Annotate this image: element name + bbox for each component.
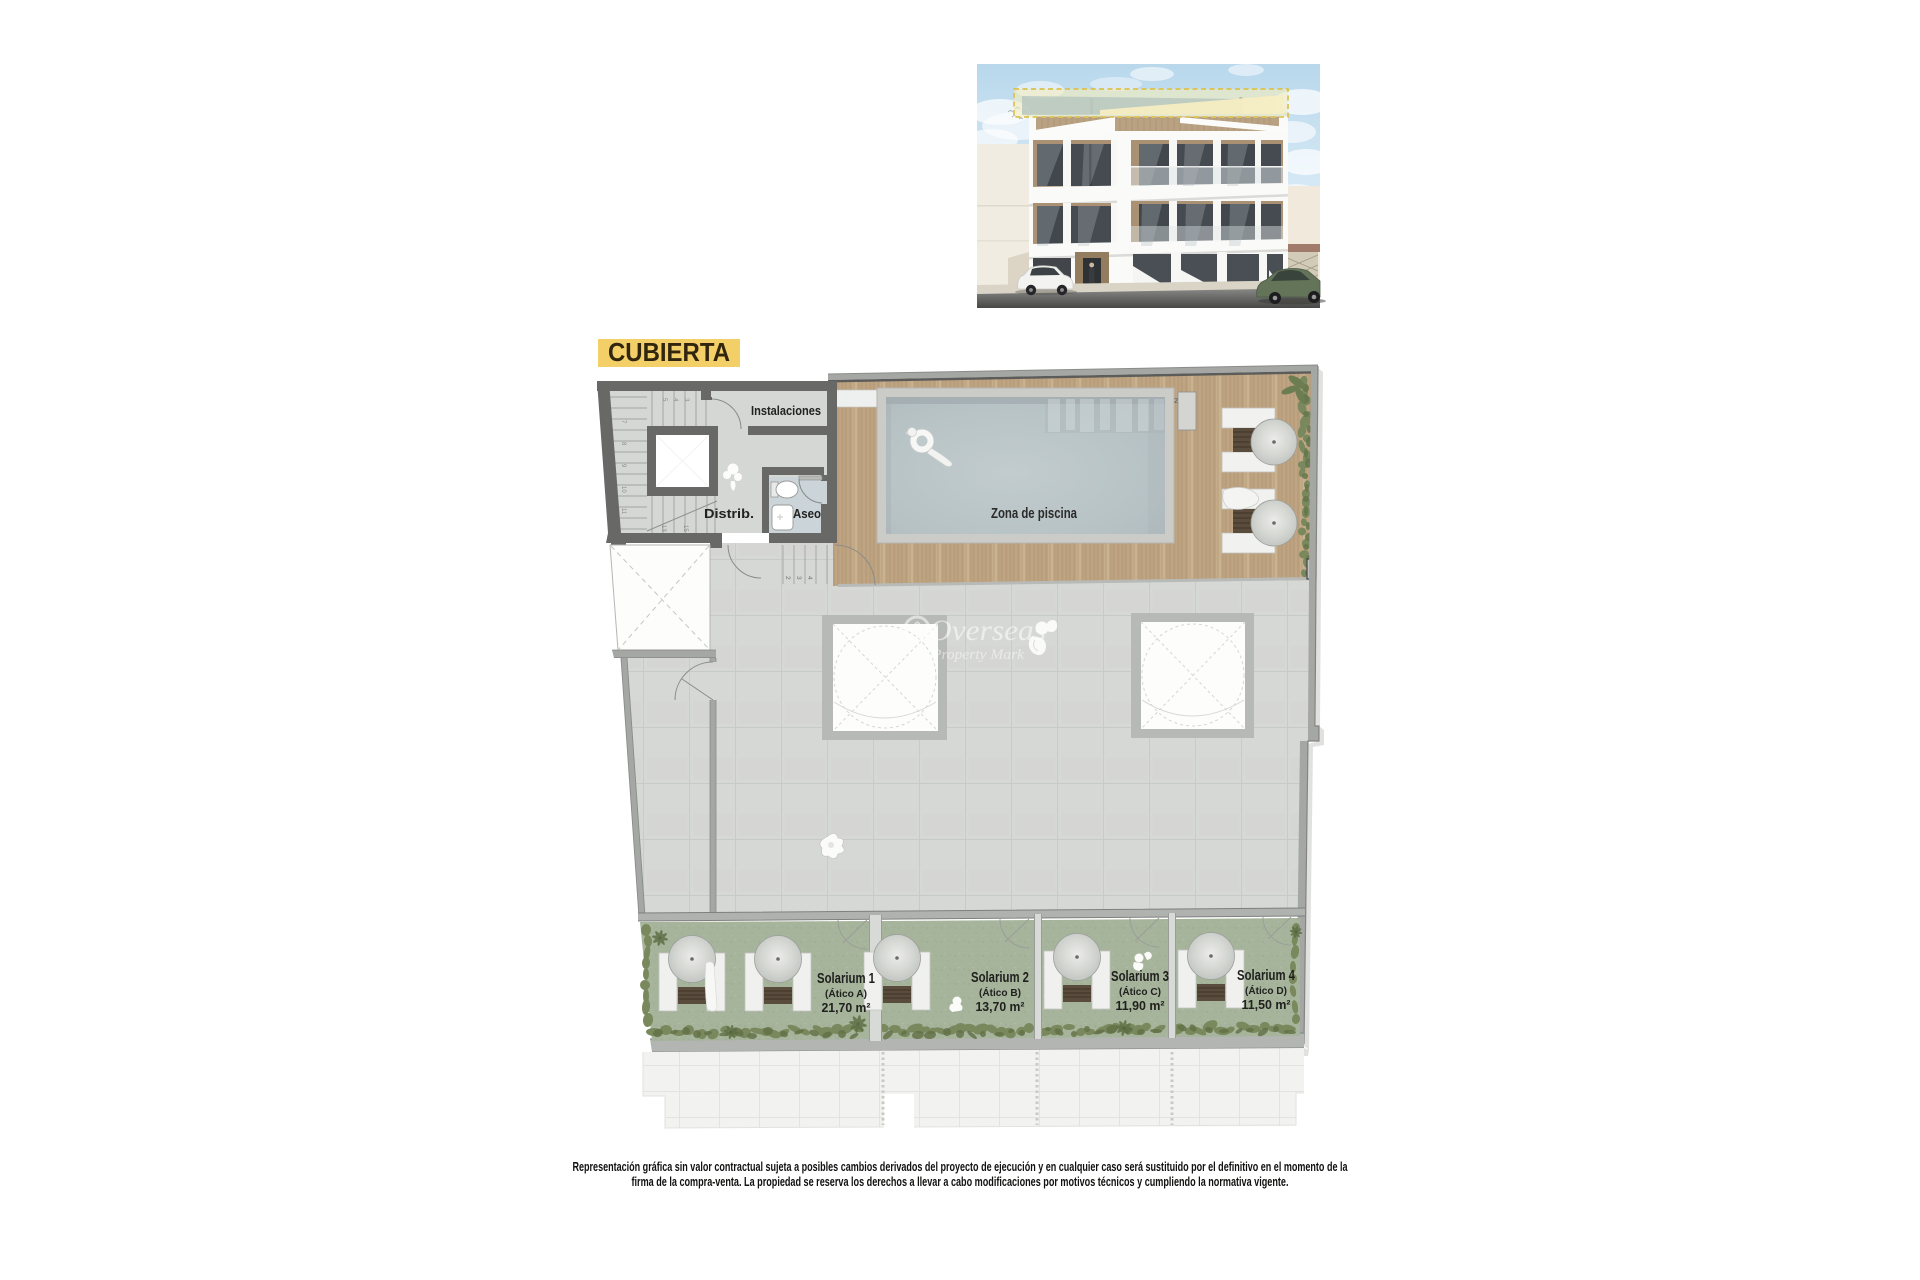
svg-text:Representación gráfica sin val: Representación gráfica sin valor contrac… <box>573 1160 1349 1174</box>
svg-text:(Ático A): (Ático A) <box>825 987 867 1000</box>
svg-text:4: 4 <box>806 576 813 580</box>
svg-text:21,70 m²: 21,70 m² <box>822 1001 871 1015</box>
svg-text:Aseo: Aseo <box>793 507 821 521</box>
svg-text:Distrib.: Distrib. <box>704 506 754 521</box>
svg-text:15: 15 <box>682 525 688 532</box>
svg-text:11,50 m²: 11,50 m² <box>1242 998 1291 1012</box>
svg-text:Solarium 3: Solarium 3 <box>1111 969 1169 985</box>
svg-text:10: 10 <box>620 486 626 493</box>
svg-text:3: 3 <box>795 576 802 580</box>
svg-text:11: 11 <box>620 508 626 515</box>
svg-text:11,90 m²: 11,90 m² <box>1116 999 1165 1013</box>
svg-text:Property Mark: Property Mark <box>931 647 1024 663</box>
svg-text:13,70 m²: 13,70 m² <box>976 1000 1025 1014</box>
svg-text:(Ático D): (Ático D) <box>1245 984 1287 997</box>
svg-text:CUBIERTA: CUBIERTA <box>608 337 730 367</box>
svg-text:(Ático C): (Ático C) <box>1119 985 1161 998</box>
svg-text:Zona de piscina: Zona de piscina <box>991 505 1077 522</box>
svg-text:firma de la compra-venta. La p: firma de la compra-venta. La propiedad s… <box>632 1175 1289 1189</box>
svg-text:Solarium 2: Solarium 2 <box>971 970 1029 986</box>
svg-text:(Ático B): (Ático B) <box>979 986 1021 999</box>
svg-text:Solarium 1: Solarium 1 <box>817 971 875 987</box>
svg-text:2: 2 <box>784 576 791 580</box>
svg-text:Instalaciones: Instalaciones <box>751 404 821 418</box>
svg-text:Solarium 4: Solarium 4 <box>1237 968 1295 984</box>
svg-text:2: 2 <box>1174 398 1178 405</box>
svg-text:Overseas: Overseas <box>929 614 1046 647</box>
svg-text:13: 13 <box>660 525 666 532</box>
